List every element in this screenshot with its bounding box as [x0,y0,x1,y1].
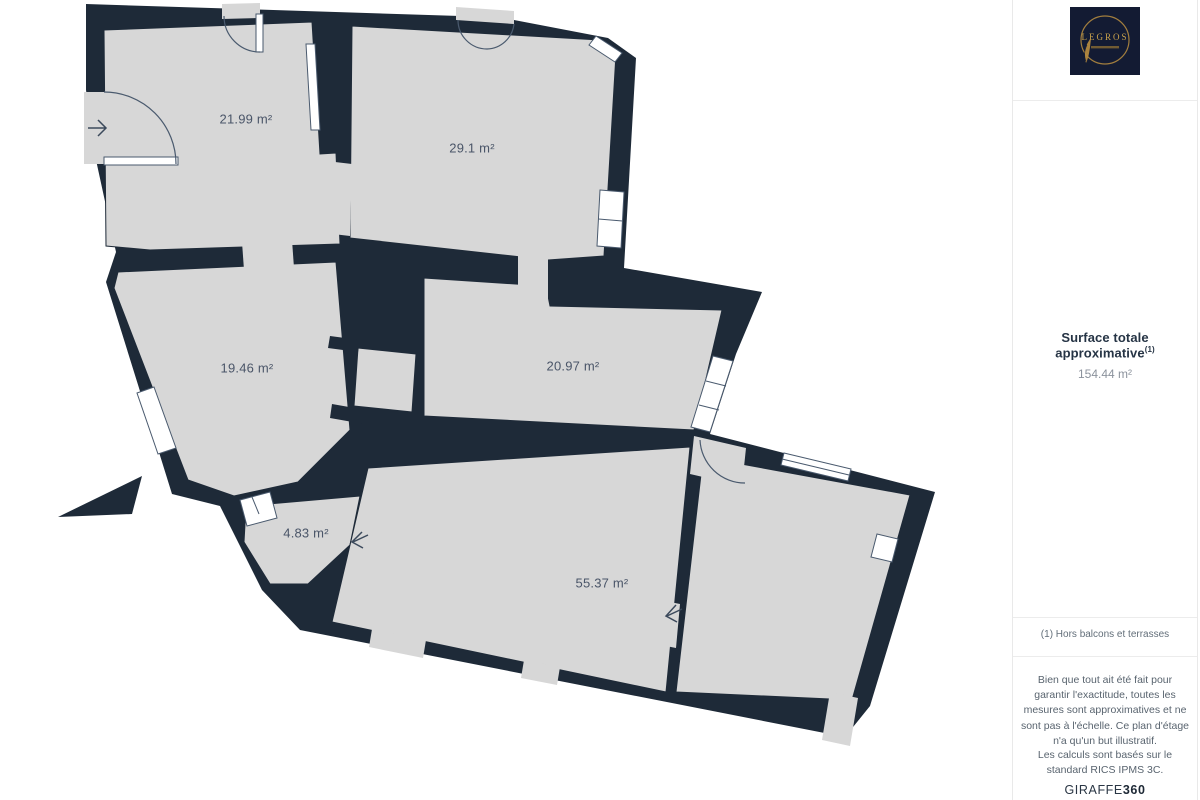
divider [1013,617,1197,618]
info-sidebar: LEGROS Surface totale approximative(1) 1… [1012,0,1198,800]
room-area-label: 19.46 m² [221,361,274,376]
door-leaf [256,14,263,52]
disclaimer-text: Bien que tout ait été fait pour garantir… [1020,673,1190,749]
door-leaf [104,157,178,165]
total-surface-value: 154.44 m² [1013,367,1197,381]
total-surface-title: Surface totale approximative(1) [1013,330,1197,360]
closet-pocket [354,348,416,412]
giraffe360-brand: GIRAFFE360 [1013,783,1197,797]
brand-name: GIRAFFE [1064,783,1122,797]
divider [1013,100,1197,101]
page: 21.99 m² 29.1 m² 19.46 m² 20.97 m² 4.83 … [0,0,1200,800]
wall-spur [58,476,142,517]
room-area-label: 4.83 m² [283,526,328,541]
room-area-label: 20.97 m² [547,359,600,374]
agency-logo: LEGROS [1070,7,1140,75]
floor-plan-canvas [0,0,1010,800]
brand-suffix: 360 [1123,783,1146,797]
door-opening [518,254,548,306]
room-polygon-55-37 [332,447,690,692]
door-opening [316,160,352,236]
door-opening [242,240,294,270]
footnote-text: (1) Hors balcons et terrasses [1013,629,1197,640]
door-opening [222,3,260,19]
total-surface-summary: Surface totale approximative(1) 154.44 m… [1013,330,1197,381]
room-polygon-21-99 [104,22,340,250]
agency-logo-art: LEGROS [1070,7,1140,75]
room-area-label: 29.1 m² [449,141,494,156]
room-polygon-19-46 [114,262,350,496]
standards-text: Les calculs sont basés sur le standard R… [1020,748,1190,778]
logo-tagline-mark [1091,46,1119,48]
agency-logo-text: LEGROS [1081,32,1128,42]
floor-plan: 21.99 m² 29.1 m² 19.46 m² 20.97 m² 4.83 … [0,0,1010,800]
footnote-marker: (1) [1145,345,1155,354]
total-surface-title-text: Surface totale approximative [1055,330,1148,360]
divider [1013,656,1197,657]
room-area-label: 21.99 m² [220,112,273,127]
room-area-label: 55.37 m² [576,576,629,591]
